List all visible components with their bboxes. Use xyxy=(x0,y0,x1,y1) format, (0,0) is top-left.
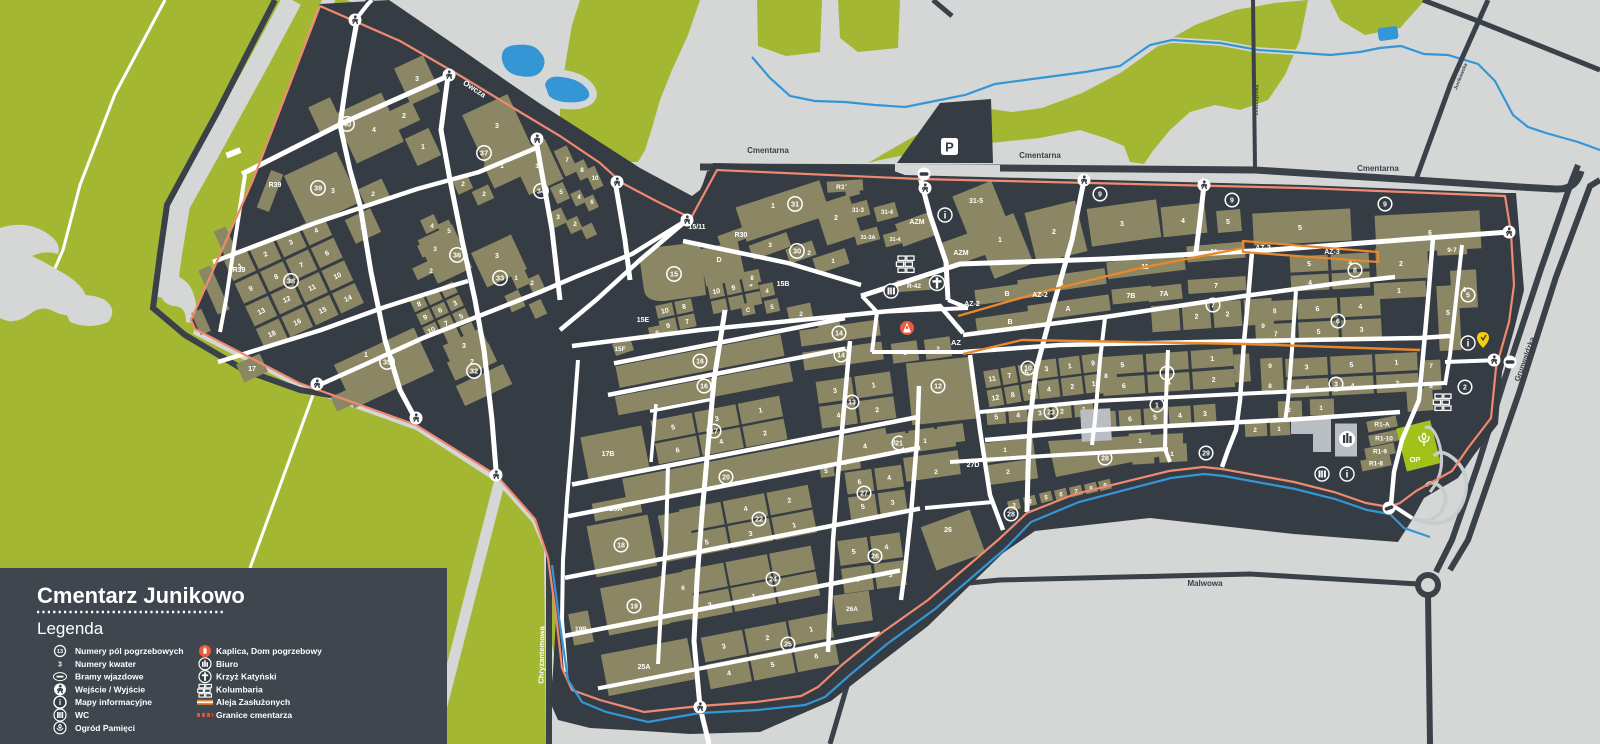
svg-text:2: 2 xyxy=(807,250,811,257)
svg-text:5: 5 xyxy=(1153,414,1157,421)
svg-text:39: 39 xyxy=(314,184,322,193)
svg-text:11: 11 xyxy=(988,375,997,383)
svg-text:6: 6 xyxy=(681,585,685,592)
svg-text:Numery pól pogrzebowych: Numery pól pogrzebowych xyxy=(75,646,184,656)
svg-text:Malwowa: Malwowa xyxy=(1187,579,1223,588)
svg-text:31: 31 xyxy=(791,200,799,209)
svg-text:4: 4 xyxy=(1358,304,1362,311)
svg-text:28: 28 xyxy=(1101,456,1109,463)
svg-text:7B: 7B xyxy=(1127,293,1136,300)
svg-text:3: 3 xyxy=(1203,411,1207,418)
svg-text:Cmentarna: Cmentarna xyxy=(1019,151,1061,160)
svg-text:9: 9 xyxy=(1268,363,1272,370)
svg-text:1: 1 xyxy=(1138,438,1142,445)
svg-text:1: 1 xyxy=(421,144,425,151)
svg-text:31-3A: 31-3A xyxy=(861,235,876,241)
svg-text:22: 22 xyxy=(755,517,763,524)
svg-text:25: 25 xyxy=(784,642,792,649)
svg-text:9: 9 xyxy=(1098,192,1102,199)
svg-text:Kolumbaria: Kolumbaria xyxy=(216,684,263,694)
svg-text:8: 8 xyxy=(1268,383,1272,390)
svg-text:21: 21 xyxy=(895,441,903,448)
svg-text:R30: R30 xyxy=(735,232,748,239)
svg-text:3: 3 xyxy=(58,661,62,668)
svg-text:19: 19 xyxy=(630,604,638,611)
svg-text:5: 5 xyxy=(824,468,828,475)
svg-text:B: B xyxy=(1004,291,1009,298)
svg-text:1: 1 xyxy=(514,275,518,282)
svg-text:C: C xyxy=(746,308,751,314)
svg-text:1: 1 xyxy=(364,352,368,359)
svg-text:WC: WC xyxy=(75,710,89,720)
svg-text:13: 13 xyxy=(848,400,856,407)
svg-text:8: 8 xyxy=(1353,268,1357,275)
svg-text:R1-8: R1-8 xyxy=(1369,461,1383,468)
svg-text:4: 4 xyxy=(1016,412,1021,419)
svg-text:1: 1 xyxy=(998,237,1002,244)
svg-text:5: 5 xyxy=(447,228,451,235)
svg-text:6: 6 xyxy=(1336,319,1340,326)
svg-text:Ogród Pamięci: Ogród Pamięci xyxy=(75,723,135,733)
svg-text:R-42: R-42 xyxy=(907,283,921,290)
svg-text:9: 9 xyxy=(1261,323,1265,330)
svg-text:R39: R39 xyxy=(233,267,246,274)
svg-text:AZM: AZM xyxy=(909,219,924,226)
svg-text:6: 6 xyxy=(1122,383,1126,390)
svg-text:R1-9: R1-9 xyxy=(1373,449,1387,456)
svg-text:Legenda: Legenda xyxy=(37,619,104,638)
svg-text:2: 2 xyxy=(461,181,465,188)
svg-text:3: 3 xyxy=(462,343,466,350)
svg-text:4: 4 xyxy=(1178,413,1182,420)
svg-text:2: 2 xyxy=(429,268,433,275)
svg-text:i: i xyxy=(59,698,61,707)
svg-text:16: 16 xyxy=(696,359,704,366)
svg-text:1: 1 xyxy=(1170,451,1174,458)
svg-text:28: 28 xyxy=(1007,512,1015,519)
svg-text:3: 3 xyxy=(1038,410,1043,417)
svg-text:2: 2 xyxy=(1060,408,1065,415)
svg-text:2: 2 xyxy=(1194,313,1198,320)
svg-text:Krzyż Katyński: Krzyż Katyński xyxy=(216,672,276,682)
svg-text:7: 7 xyxy=(1429,363,1433,370)
svg-text:10: 10 xyxy=(1024,366,1032,373)
svg-text:4: 4 xyxy=(372,127,376,134)
svg-text:2: 2 xyxy=(1212,377,1216,384)
svg-text:15: 15 xyxy=(670,270,678,279)
svg-text:36: 36 xyxy=(453,251,461,260)
svg-text:Mapy informacyjne: Mapy informacyjne xyxy=(75,697,152,707)
svg-text:2: 2 xyxy=(1399,261,1403,268)
svg-text:2: 2 xyxy=(530,280,534,287)
svg-text:5: 5 xyxy=(1307,261,1311,268)
svg-text:2: 2 xyxy=(482,191,486,198)
svg-text:7: 7 xyxy=(1211,303,1215,310)
svg-text:5: 5 xyxy=(1226,219,1230,226)
svg-text:Leszczyńska: Leszczyńska xyxy=(1254,84,1261,115)
svg-text:2: 2 xyxy=(402,113,406,120)
svg-text:2: 2 xyxy=(1253,427,1257,434)
svg-text:3: 3 xyxy=(1120,221,1124,228)
svg-text:14: 14 xyxy=(837,353,845,360)
svg-text:9: 9 xyxy=(1230,198,1234,205)
svg-text:8: 8 xyxy=(580,167,584,174)
svg-text:i: i xyxy=(1467,338,1470,349)
svg-text:6: 6 xyxy=(1128,416,1132,423)
svg-text:Biuro: Biuro xyxy=(216,659,238,669)
svg-text:3: 3 xyxy=(415,76,419,83)
svg-text:13: 13 xyxy=(57,649,63,655)
svg-text:Kaplica, Dom pogrzebowy: Kaplica, Dom pogrzebowy xyxy=(216,646,322,656)
svg-text:31-4: 31-4 xyxy=(881,210,894,216)
svg-text:33: 33 xyxy=(496,274,504,283)
svg-text:17: 17 xyxy=(248,366,256,373)
svg-text:1: 1 xyxy=(1319,405,1323,412)
svg-text:R1-A: R1-A xyxy=(1374,422,1389,429)
svg-text:27D: 27D xyxy=(967,462,980,469)
svg-text:1: 1 xyxy=(1155,403,1159,410)
svg-text:Bramy wjazdowe: Bramy wjazdowe xyxy=(75,672,144,682)
svg-text:3: 3 xyxy=(433,246,437,253)
svg-text:5: 5 xyxy=(994,414,999,421)
svg-text:R1-10: R1-10 xyxy=(1375,436,1393,443)
svg-text:Wejście / Wyjście: Wejście / Wyjście xyxy=(75,684,145,694)
svg-text:OP: OP xyxy=(1410,455,1421,464)
svg-text:1: 1 xyxy=(831,258,835,265)
svg-text:4: 4 xyxy=(1181,218,1185,225)
svg-text:31-3: 31-3 xyxy=(852,208,865,214)
svg-text:2: 2 xyxy=(834,215,838,222)
svg-text:26: 26 xyxy=(944,527,952,534)
svg-text:37: 37 xyxy=(480,149,488,158)
svg-text:3: 3 xyxy=(495,123,499,130)
svg-text:3: 3 xyxy=(1304,364,1308,371)
svg-text:A: A xyxy=(1065,306,1070,313)
svg-text:12: 12 xyxy=(991,394,1000,402)
svg-text:5: 5 xyxy=(1466,293,1470,300)
svg-text:18: 18 xyxy=(617,543,625,550)
svg-text:4: 4 xyxy=(430,223,434,230)
svg-text:23: 23 xyxy=(1047,410,1055,417)
svg-text:R39: R39 xyxy=(269,182,282,189)
svg-text:2: 2 xyxy=(934,469,938,476)
svg-text:8: 8 xyxy=(1104,373,1108,380)
svg-text:Cmentarna: Cmentarna xyxy=(747,146,789,155)
svg-text:12: 12 xyxy=(934,384,942,391)
svg-text:1: 1 xyxy=(1277,426,1281,433)
svg-text:1: 1 xyxy=(771,203,775,210)
svg-text:17B: 17B xyxy=(602,451,615,458)
svg-text:i: i xyxy=(1346,469,1349,480)
svg-text:6: 6 xyxy=(1315,306,1319,313)
svg-text:P: P xyxy=(945,140,954,155)
svg-text:2: 2 xyxy=(1463,385,1467,392)
svg-text:26: 26 xyxy=(871,554,879,561)
svg-text:3: 3 xyxy=(768,242,772,249)
svg-text:Numery kwater: Numery kwater xyxy=(75,659,137,669)
svg-text:1: 1 xyxy=(1003,447,1007,454)
svg-text:i: i xyxy=(944,210,947,221)
svg-text:16: 16 xyxy=(700,384,708,391)
svg-text:2: 2 xyxy=(799,311,803,318)
svg-text:Cmentarna: Cmentarna xyxy=(1357,164,1399,173)
svg-text:27: 27 xyxy=(860,491,868,498)
svg-text:AZ-3: AZ-3 xyxy=(1324,249,1340,256)
svg-text:5: 5 xyxy=(1349,362,1353,369)
svg-text:10: 10 xyxy=(592,176,599,182)
svg-text:2: 2 xyxy=(573,221,577,228)
svg-text:1: 1 xyxy=(1394,360,1398,367)
svg-text:5: 5 xyxy=(1446,310,1450,317)
svg-text:31-5: 31-5 xyxy=(969,198,983,205)
svg-text:25A: 25A xyxy=(638,664,651,671)
svg-text:29: 29 xyxy=(1202,451,1210,458)
svg-text:32: 32 xyxy=(470,367,478,376)
svg-text:AZM: AZM xyxy=(953,250,968,257)
svg-text:B: B xyxy=(1007,319,1012,326)
svg-text:5: 5 xyxy=(559,189,563,196)
svg-text:5: 5 xyxy=(1298,225,1302,232)
svg-text:3: 3 xyxy=(1359,327,1363,334)
svg-text:7: 7 xyxy=(1214,283,1218,290)
svg-text:1: 1 xyxy=(1397,288,1401,295)
svg-text:Granice cmentarza: Granice cmentarza xyxy=(216,710,292,720)
svg-text:AZ: AZ xyxy=(951,338,961,347)
svg-text:5: 5 xyxy=(1120,362,1124,369)
svg-text:2: 2 xyxy=(1225,311,1229,318)
svg-text:15B: 15B xyxy=(777,281,790,288)
svg-text:9: 9 xyxy=(1383,202,1387,209)
svg-text:15E: 15E xyxy=(637,317,650,324)
svg-text:5: 5 xyxy=(1317,329,1321,336)
svg-text:7: 7 xyxy=(565,157,569,164)
svg-text:14: 14 xyxy=(835,331,843,338)
svg-text:38: 38 xyxy=(287,277,295,286)
svg-text:D: D xyxy=(716,257,721,264)
svg-text:AZ-2: AZ-2 xyxy=(1255,245,1271,252)
svg-text:3: 3 xyxy=(331,188,335,195)
svg-text:2: 2 xyxy=(371,191,375,198)
svg-text:Chryzantemowa: Chryzantemowa xyxy=(536,625,546,683)
svg-text:24: 24 xyxy=(769,577,777,584)
svg-text:30: 30 xyxy=(793,247,801,256)
svg-text:20: 20 xyxy=(722,475,730,482)
svg-text:AZ-2: AZ-2 xyxy=(1032,292,1048,299)
svg-text:2: 2 xyxy=(1052,229,1056,236)
svg-text:1: 1 xyxy=(923,438,927,445)
svg-text:7A: 7A xyxy=(1160,291,1169,298)
svg-text:3: 3 xyxy=(556,214,560,221)
svg-text:26A: 26A xyxy=(846,606,858,613)
svg-text:1: 1 xyxy=(1210,356,1214,363)
svg-text:3: 3 xyxy=(495,253,499,260)
svg-text:Cmentarz Junikowo: Cmentarz Junikowo xyxy=(37,583,245,608)
svg-text:2: 2 xyxy=(1006,469,1010,476)
svg-text:9-7: 9-7 xyxy=(1447,247,1457,254)
svg-text:Aleja Zasłużonych: Aleja Zasłużonych xyxy=(216,697,290,707)
svg-text:AZ-2: AZ-2 xyxy=(964,301,980,308)
svg-text:15F: 15F xyxy=(614,346,625,353)
